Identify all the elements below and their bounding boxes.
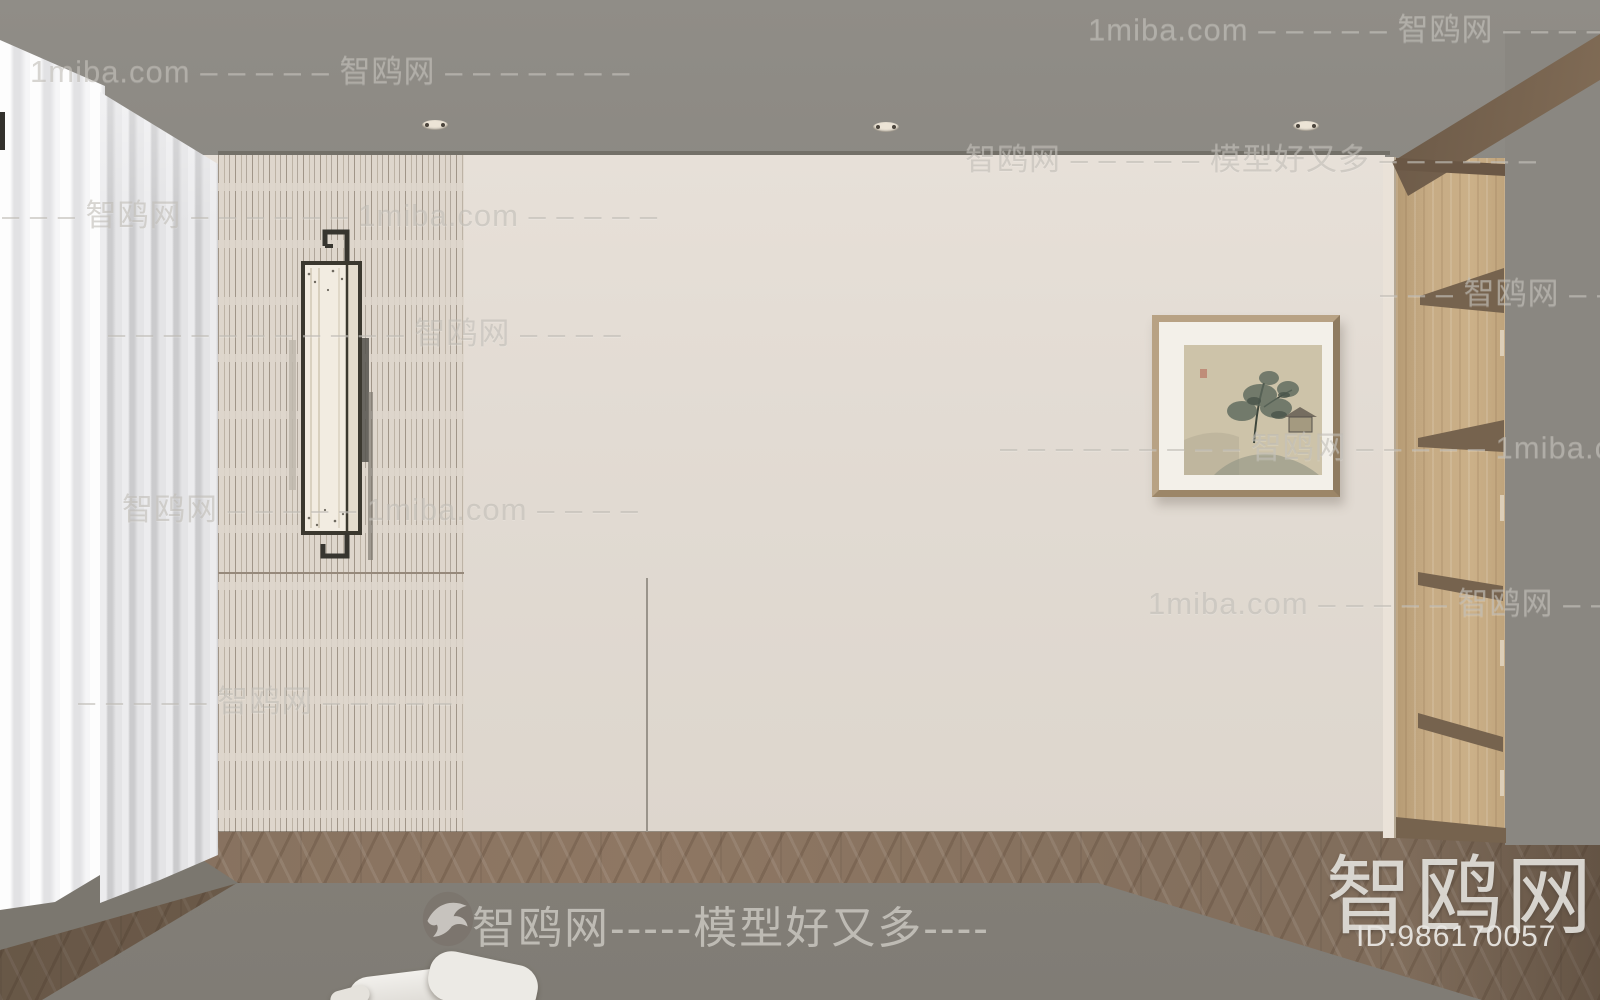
curtain-gap (0, 112, 5, 150)
watermark-row: 智鸥网 – – – – – 模型好又多 – – – – – – (965, 142, 1537, 178)
watermark-row: 1miba.com – – – – – 智鸥网 – – – – – – – (30, 54, 630, 90)
watermark-row: – – – 智鸥网 – – – – – – 1miba.com – – – – … (2, 198, 658, 234)
bird-logo-icon (420, 890, 476, 948)
watermark-row: – – – – – – – – – 智鸥网 – – – – – 1miba.co… (1000, 430, 1600, 466)
shelf-edge-highlight (1500, 640, 1504, 666)
framed-painting (1152, 315, 1340, 497)
watermark-row: – – – 智鸥网 – – (1380, 276, 1600, 312)
shelf-edge-highlight (1500, 770, 1504, 796)
shelf-edge-highlight (1500, 495, 1504, 521)
recessed-light (873, 122, 899, 132)
slat-panel-seam (218, 572, 464, 574)
room-render: 1miba.com – – – – – 智鸥网 – – – – – – 1mib… (0, 0, 1600, 1000)
watermark-row: 1miba.com – – – – – 智鸥网 – – – – – – (1088, 12, 1600, 48)
watermark-tagline: 智鸥网-----模型好又多---- (472, 892, 990, 956)
curtain-sheer-left (0, 0, 105, 1000)
watermark-row: 1miba.com – – – – – 智鸥网 – – – – – (1148, 586, 1600, 622)
wall-panel-seam (646, 578, 648, 836)
recessed-light (422, 120, 448, 130)
watermark-row: 智鸥网 – – – – – 1miba.com – – – – (122, 492, 639, 528)
watermark-row: – – – – – 智鸥网 – – – – – (78, 684, 453, 720)
asset-id: ID:986170057 (1356, 920, 1557, 954)
recessed-light (1293, 121, 1319, 131)
watermark-footer: 智鸥网-----模型好又多---- (420, 890, 1020, 960)
shelf-edge-highlight (1500, 330, 1504, 356)
watermark-row: – – – – – – – – – – – 智鸥网 – – – – (108, 316, 622, 352)
cabinet-side-edge (1383, 157, 1396, 838)
